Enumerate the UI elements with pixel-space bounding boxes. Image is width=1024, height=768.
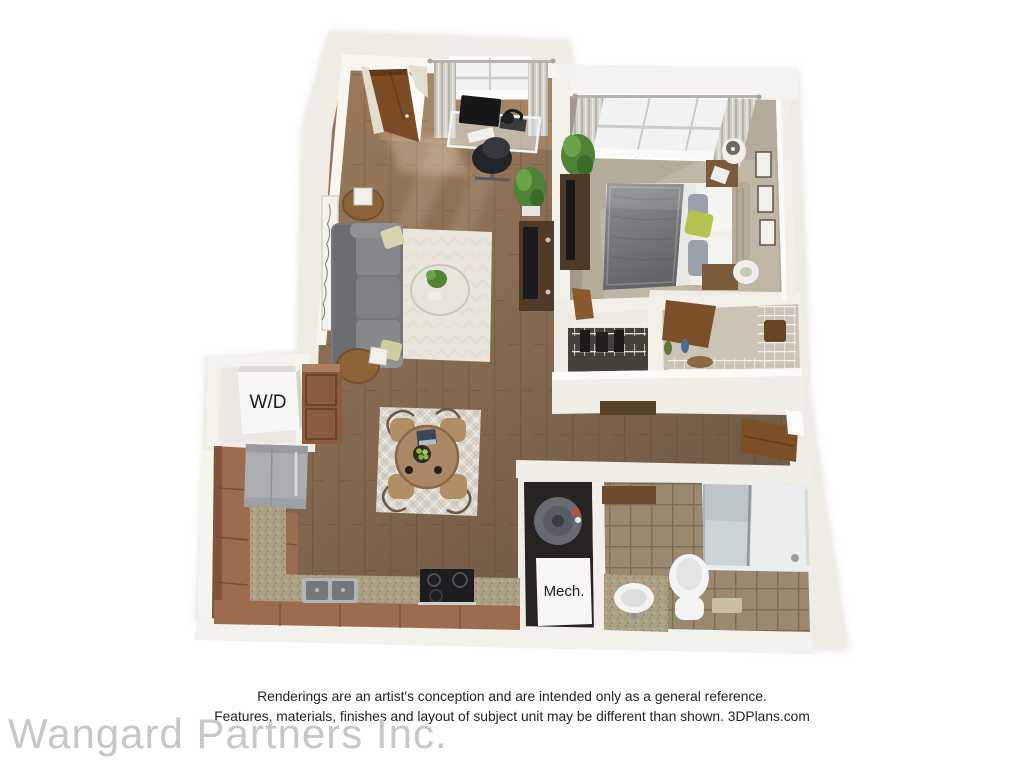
svg-text:Mech.: Mech. — [544, 583, 585, 600]
svg-text:W/D: W/D — [250, 392, 287, 413]
